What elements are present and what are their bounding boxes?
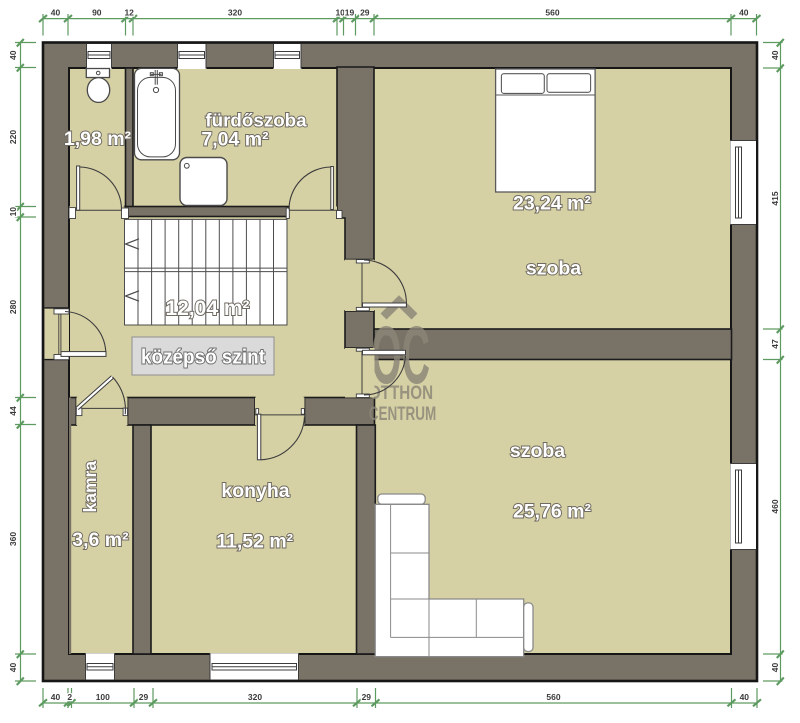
svg-text:10: 10 — [8, 207, 18, 217]
svg-text:40: 40 — [770, 663, 780, 673]
svg-text:40: 40 — [770, 50, 780, 60]
svg-text:320: 320 — [228, 8, 242, 18]
svg-text:11,52 m²: 11,52 m² — [216, 531, 293, 553]
svg-text:40: 40 — [739, 8, 749, 18]
svg-text:12,04 m²: 12,04 m² — [165, 297, 249, 320]
svg-text:3,6 m²: 3,6 m² — [72, 529, 129, 551]
svg-text:360: 360 — [8, 532, 18, 546]
svg-text:szoba: szoba — [510, 440, 565, 462]
svg-text:90: 90 — [92, 8, 102, 18]
svg-text:100: 100 — [96, 692, 110, 702]
svg-text:25,76 m²: 25,76 m² — [513, 501, 592, 523]
svg-text:23,24 m²: 23,24 m² — [513, 193, 592, 215]
svg-text:40: 40 — [8, 663, 18, 673]
svg-text:40: 40 — [51, 8, 61, 18]
svg-text:középső szint: középső szint — [141, 346, 265, 369]
svg-text:40: 40 — [8, 50, 18, 60]
svg-text:10: 10 — [335, 8, 345, 18]
svg-text:320: 320 — [248, 692, 262, 702]
svg-text:40: 40 — [51, 692, 61, 702]
svg-text:29: 29 — [360, 8, 370, 18]
svg-text:44: 44 — [8, 406, 18, 416]
svg-text:47: 47 — [770, 339, 780, 349]
svg-text:CENTRUM: CENTRUM — [369, 404, 436, 425]
svg-text:415: 415 — [770, 191, 780, 205]
svg-text:2: 2 — [67, 692, 72, 702]
svg-text:560: 560 — [545, 8, 559, 18]
svg-text:29: 29 — [362, 692, 372, 702]
svg-text:29: 29 — [139, 692, 149, 702]
svg-text:1,98 m²: 1,98 m² — [64, 128, 132, 150]
svg-text:konyha: konyha — [221, 480, 289, 502]
svg-text:280: 280 — [8, 300, 18, 314]
svg-text:460: 460 — [770, 499, 780, 513]
svg-text:560: 560 — [546, 692, 560, 702]
svg-text:40: 40 — [740, 692, 750, 702]
svg-text:19: 19 — [345, 8, 355, 18]
svg-text:fürdőszoba: fürdőszoba — [205, 110, 307, 131]
svg-text:220: 220 — [8, 130, 18, 144]
svg-text:12: 12 — [124, 8, 134, 18]
svg-text:szoba: szoba — [526, 258, 581, 280]
svg-text:kamra: kamra — [80, 461, 100, 513]
svg-text:7,04 m²: 7,04 m² — [201, 129, 269, 151]
